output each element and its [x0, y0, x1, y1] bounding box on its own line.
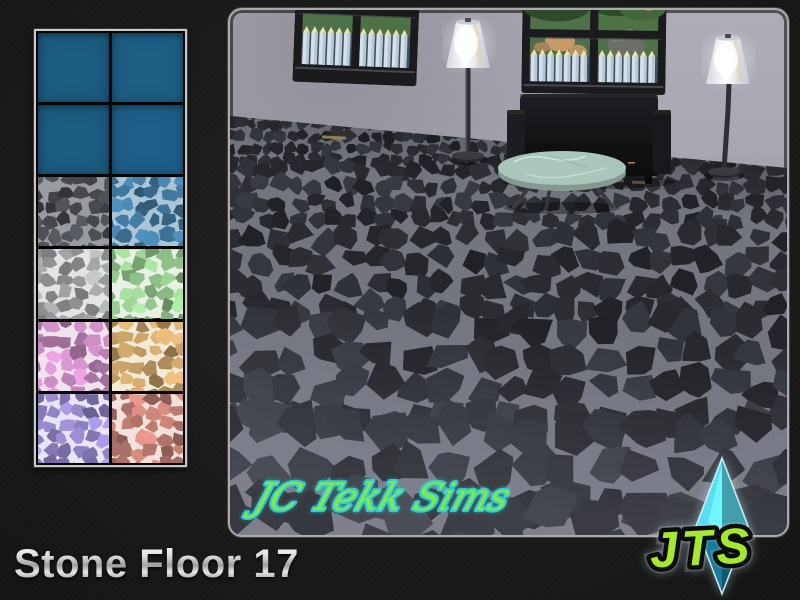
stone-texture: [112, 249, 183, 318]
stone-texture: [38, 177, 109, 246]
artist-signature: JC Tekk Sims JC Tekk Sims: [230, 448, 510, 548]
cc-preview-canvas: JC Tekk Sims JC Tekk Sims JTS JTS JTS St…: [0, 0, 800, 600]
swatch-grid: [36, 31, 185, 465]
signature-text: JC Tekk Sims: [242, 476, 510, 520]
swatch-green-stone[interactable]: [112, 249, 183, 318]
floor-lamp-right: [702, 30, 756, 186]
floor-lamp-left: [442, 14, 496, 170]
ottoman-bench: [492, 144, 634, 216]
stone-texture: [112, 177, 183, 246]
stone-texture: [112, 394, 183, 463]
swatch-pink-stone[interactable]: [38, 322, 109, 391]
stone-texture: [112, 322, 183, 391]
logo-text: JTS: [648, 517, 754, 578]
jts-logo: JTS JTS JTS: [638, 448, 796, 600]
stone-texture: [38, 322, 109, 391]
swatch-light-gray-stone[interactable]: [38, 249, 109, 318]
swatch-panel: [34, 29, 187, 467]
stone-texture: [38, 394, 109, 463]
swatch-plain-blue-2[interactable]: [112, 33, 183, 102]
swatch-plain-blue-4[interactable]: [112, 105, 183, 174]
stone-texture: [38, 249, 109, 318]
swatch-blue-stone[interactable]: [112, 177, 183, 246]
window-right: [521, 8, 666, 95]
swatch-red-stone[interactable]: [112, 394, 183, 463]
swatch-purple-stone[interactable]: [38, 394, 109, 463]
swatch-tan-stone[interactable]: [112, 322, 183, 391]
swatch-plain-blue-3[interactable]: [38, 105, 109, 174]
page-title: Stone Floor 17: [14, 542, 299, 587]
window-left: [292, 8, 419, 86]
swatch-plain-blue-1[interactable]: [38, 33, 109, 102]
swatch-dark-gray-stone[interactable]: [38, 177, 109, 246]
